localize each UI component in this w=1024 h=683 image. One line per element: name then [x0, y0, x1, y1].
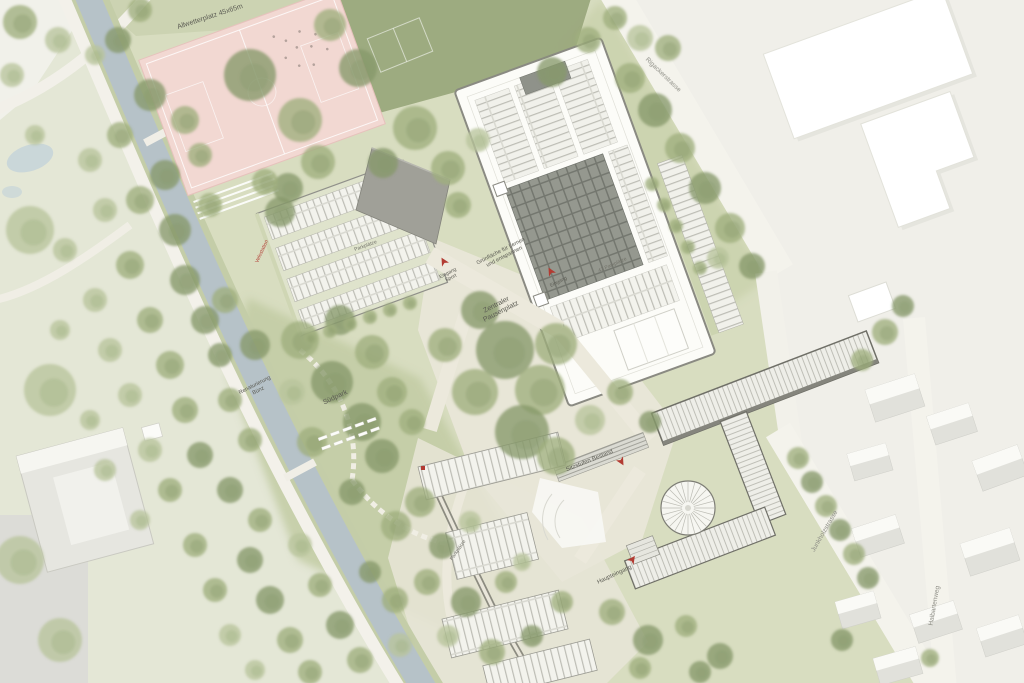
entrance-dot-icon	[421, 466, 425, 470]
round-pavilion	[661, 481, 715, 535]
pond-small	[2, 186, 22, 198]
site-plan: Allwetterplatz 45x65m Grünfläche für Ler…	[0, 0, 1024, 683]
site-plan-canvas: Allwetterplatz 45x65m Grünfläche für Ler…	[0, 0, 1024, 683]
